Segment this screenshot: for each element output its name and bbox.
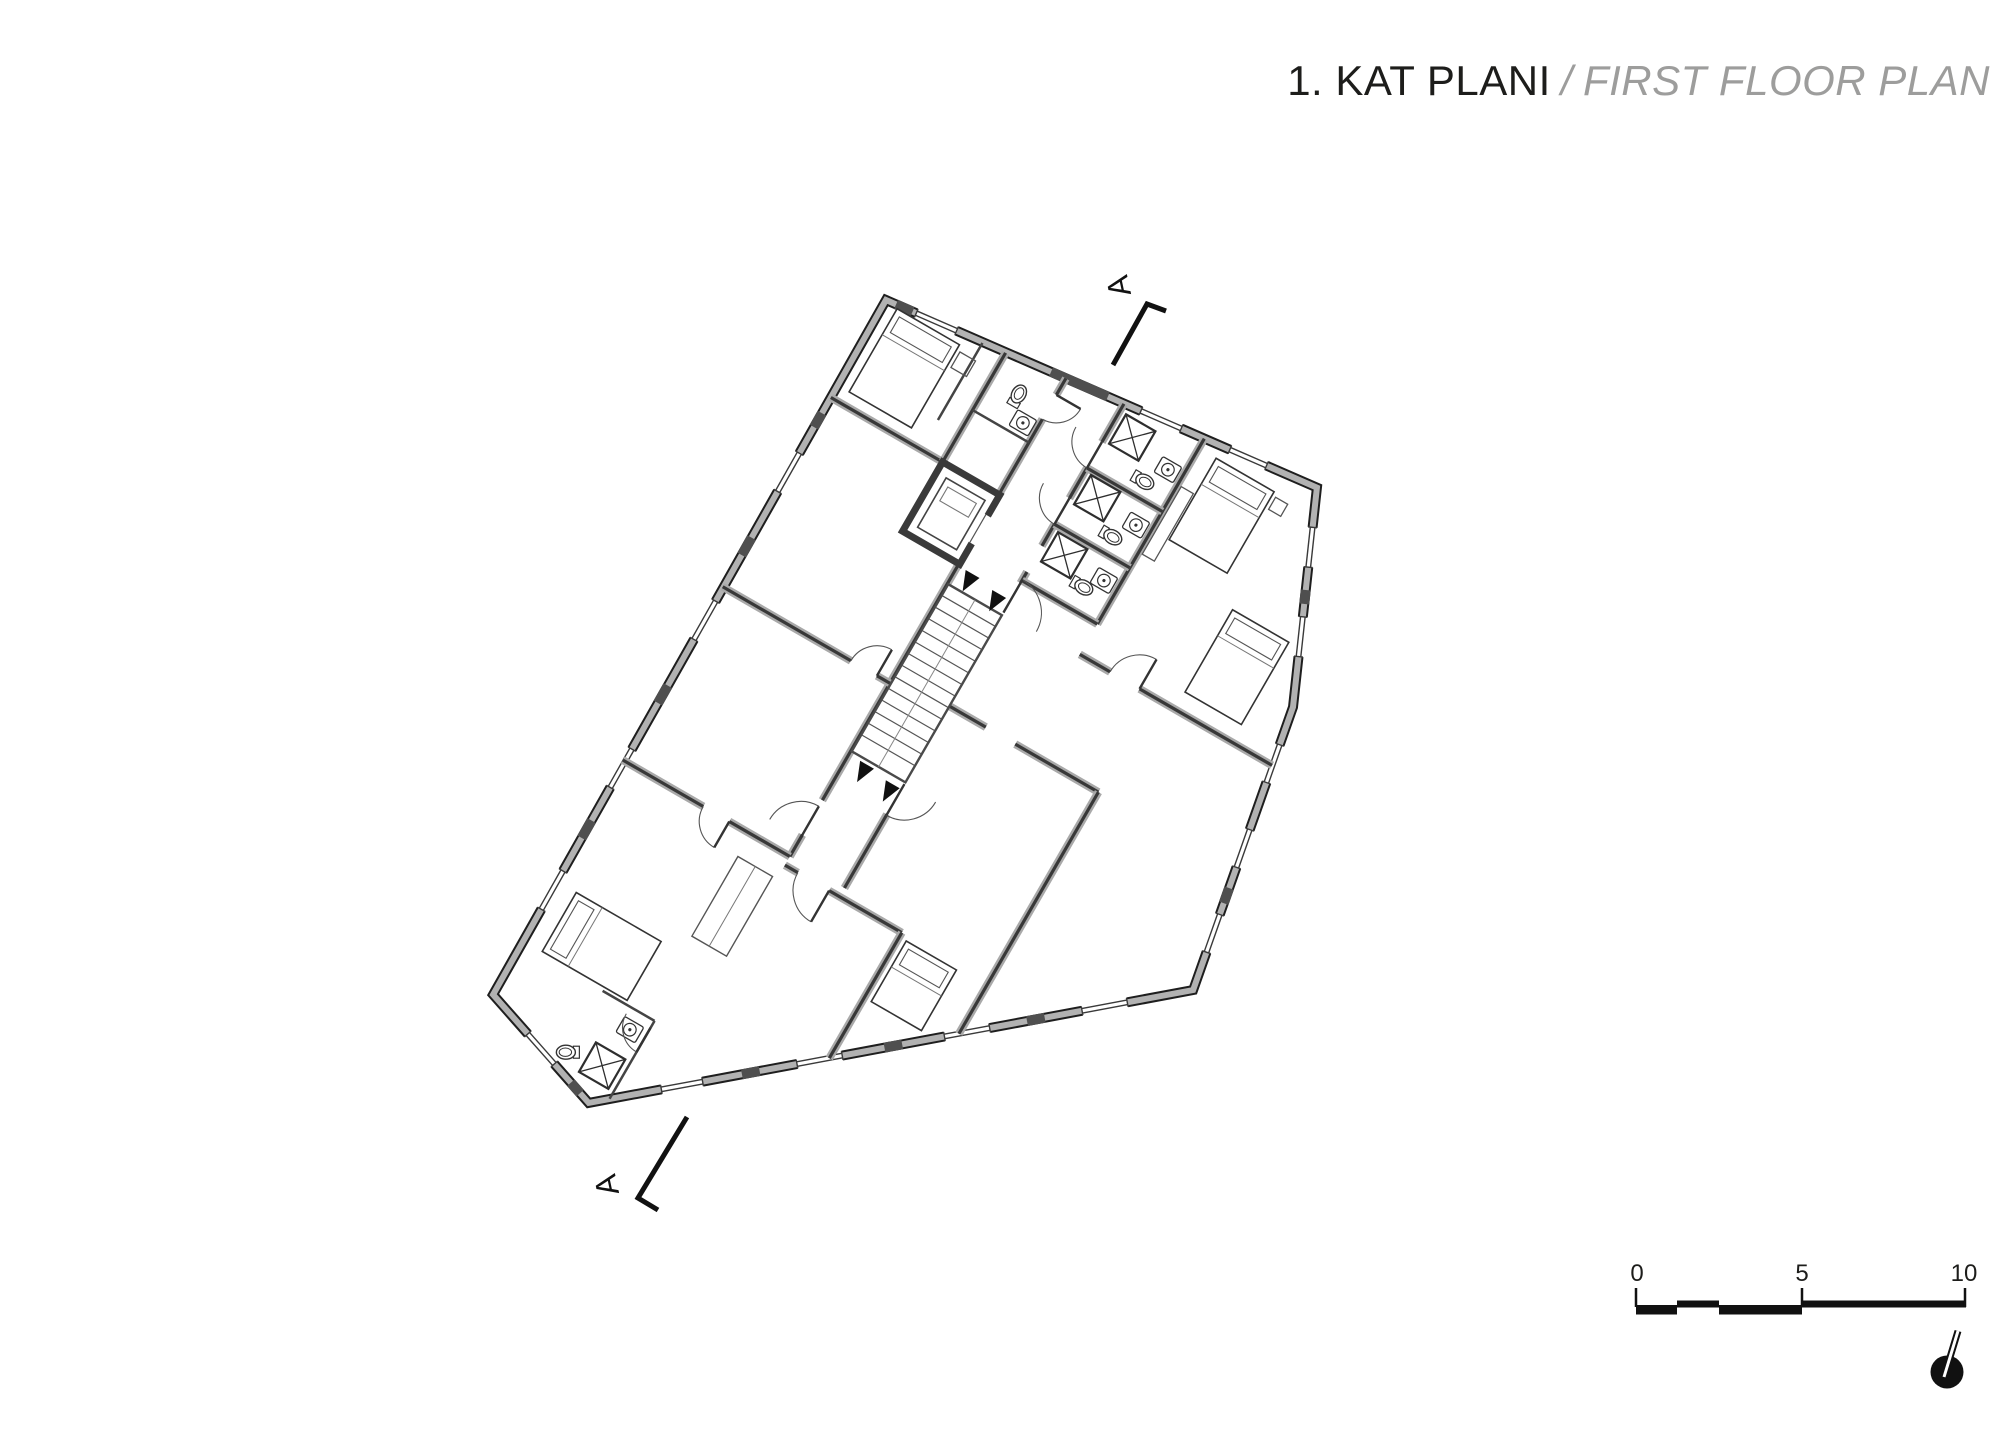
scale-bar-segment	[1802, 1301, 1966, 1308]
scale-label-10: 10	[1951, 1260, 1978, 1287]
north-arrow-icon	[1931, 1331, 1964, 1389]
drawing-sheet: 1. KAT PLANI/FIRST FLOOR PLAN A A 0 5 1	[0, 0, 2000, 1442]
scale-label-0: 0	[1630, 1260, 1643, 1287]
scale-bar: 0 5 10	[1630, 1260, 1977, 1315]
section-marker-a-bottom: A	[587, 1117, 687, 1210]
section-line-bottom	[638, 1117, 687, 1210]
scale-bar-segment	[1719, 1308, 1802, 1315]
floor-plan-drawing: A A 0 5 10	[0, 0, 2000, 1442]
scale-bar-segment	[1677, 1301, 1719, 1308]
section-label-bottom: A	[587, 1171, 626, 1199]
wall-pier	[814, 413, 822, 427]
scale-bar-segment	[1636, 1308, 1677, 1315]
building-plan	[461, 253, 1441, 1337]
section-label-top: A	[1099, 272, 1138, 300]
scale-label-5: 5	[1795, 1260, 1808, 1287]
section-marker-a-top: A	[1099, 272, 1166, 365]
section-line-top	[1113, 304, 1166, 365]
wall-pier	[1299, 590, 1310, 604]
